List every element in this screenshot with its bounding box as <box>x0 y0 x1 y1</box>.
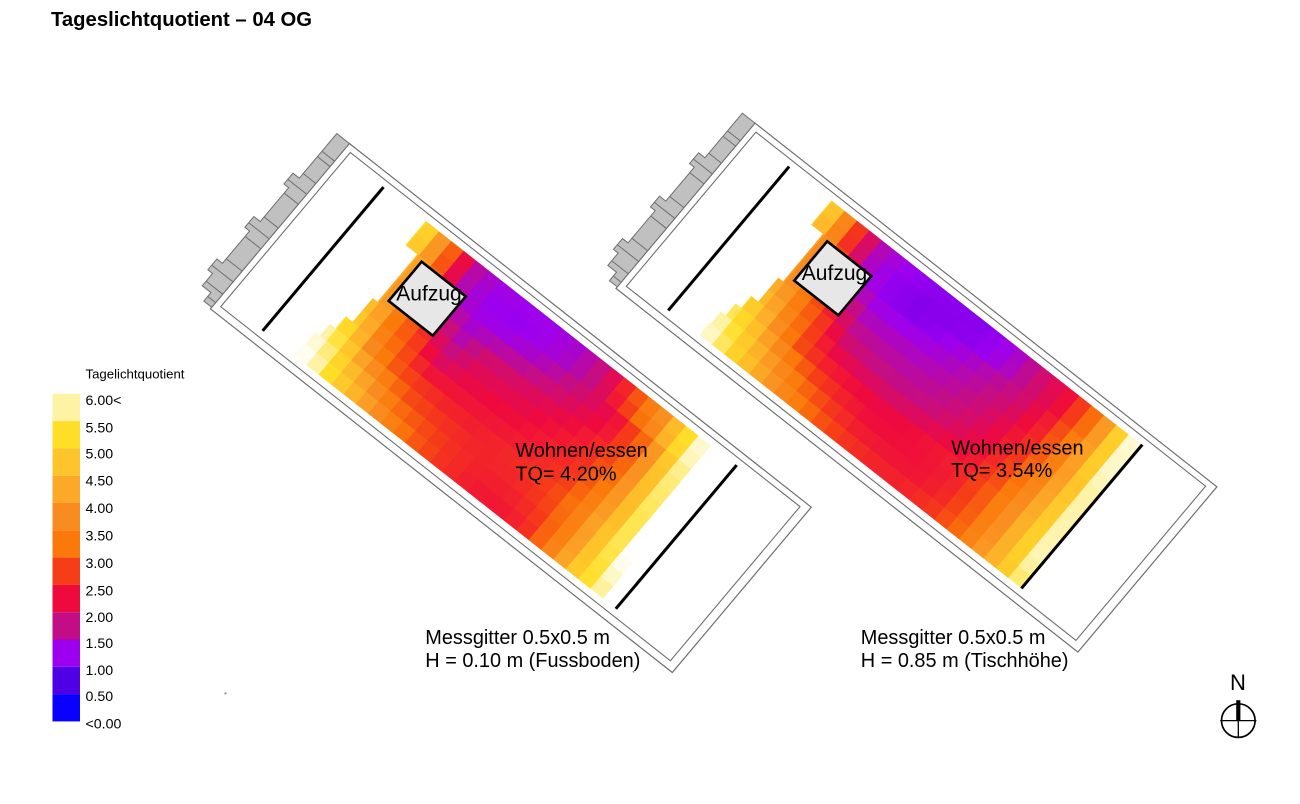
svg-text:N: N <box>1230 670 1246 695</box>
svg-text:4.00: 4.00 <box>86 501 114 517</box>
svg-text:Aufzug: Aufzug <box>802 262 867 285</box>
svg-text:0.50: 0.50 <box>86 689 114 705</box>
svg-text:Wohnen/essen: Wohnen/essen <box>951 437 1083 459</box>
svg-text:Aufzug: Aufzug <box>396 283 461 306</box>
svg-text:2.50: 2.50 <box>86 584 114 600</box>
svg-text:TQ= 4.20%: TQ= 4.20% <box>515 464 616 486</box>
svg-text:3.50: 3.50 <box>86 528 114 544</box>
svg-text:H = 0.85 m (Tischhöhe): H = 0.85 m (Tischhöhe) <box>861 650 1069 672</box>
svg-text:<0.00: <0.00 <box>86 716 122 732</box>
svg-text:1.00: 1.00 <box>86 663 114 679</box>
svg-text:Tagelichtquotient: Tagelichtquotient <box>86 367 185 382</box>
svg-text:Wohnen/essen: Wohnen/essen <box>515 440 647 462</box>
svg-text:1.50: 1.50 <box>86 636 114 652</box>
svg-text:H = 0.10 m (Fussboden): H = 0.10 m (Fussboden) <box>425 650 640 672</box>
svg-text:3.00: 3.00 <box>86 556 114 572</box>
svg-text:TQ= 3.54%: TQ= 3.54% <box>951 460 1052 482</box>
svg-text:2.00: 2.00 <box>86 610 114 626</box>
svg-text:6.00<: 6.00< <box>86 393 122 409</box>
svg-text:5.50: 5.50 <box>86 421 114 437</box>
svg-text:4.50: 4.50 <box>86 473 114 489</box>
svg-text:5.00: 5.00 <box>86 447 114 463</box>
svg-text:Messgitter 0.5x0.5 m: Messgitter 0.5x0.5 m <box>861 627 1046 649</box>
svg-text:Messgitter 0.5x0.5 m: Messgitter 0.5x0.5 m <box>425 627 610 649</box>
svg-text:Tageslichtquotient – 04 OG: Tageslichtquotient – 04 OG <box>51 9 312 31</box>
